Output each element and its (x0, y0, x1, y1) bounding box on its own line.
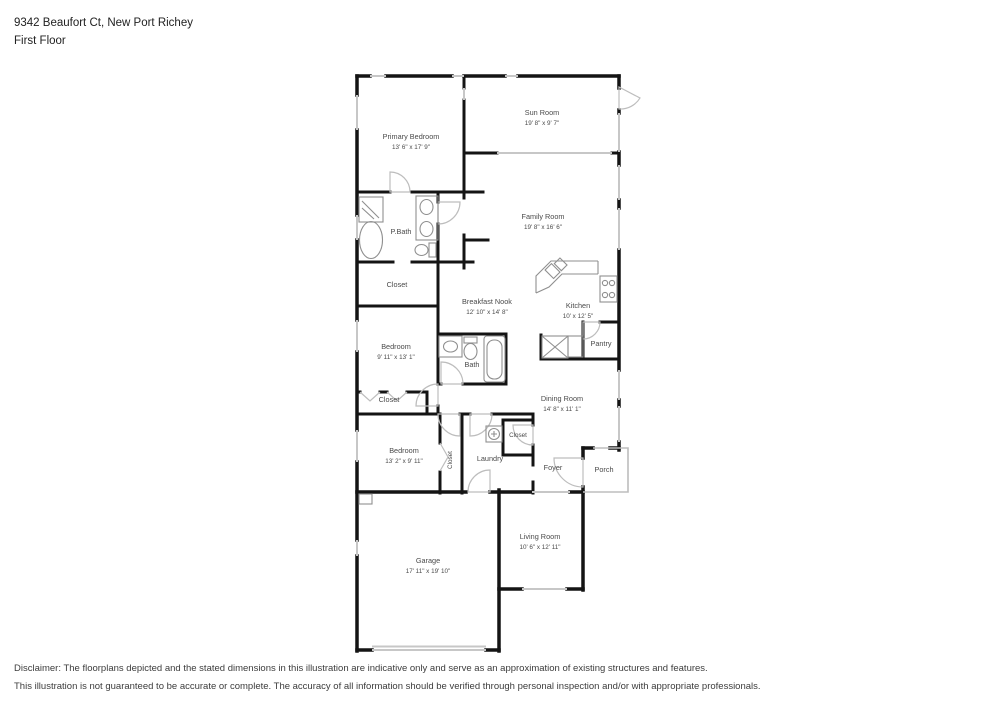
disclaimer-line1: Disclaimer: The floorplans depicted and … (14, 660, 984, 678)
room-label-bath2: Bath (464, 360, 479, 369)
garage-door-swing (468, 470, 490, 492)
room-label-laundry: Laundry (477, 454, 504, 463)
room-label-foyer: Foyer (544, 463, 563, 472)
stove-icon (600, 276, 617, 302)
pbath-door-swing (438, 202, 460, 224)
shower-icon (359, 197, 383, 222)
closet2-bifold-door (360, 392, 380, 401)
room-label-closet-entry: Closet (509, 432, 527, 439)
water-heater-icon (486, 426, 502, 442)
floorplan-svg: Primary Bedroom 13' 6" x 17' 9" Sun Room… (0, 0, 1000, 707)
room-label-sun-room: Sun Room (525, 108, 559, 117)
room-label-bedroom2: Bedroom (381, 342, 411, 351)
room-label-living-room: Living Room (520, 532, 561, 541)
double-sink-vanity-icon (416, 196, 438, 240)
room-label-garage: Garage (416, 556, 440, 565)
room-label-breakfast-nook: Breakfast Nook (462, 297, 512, 306)
kitchen-counter-icon (536, 257, 598, 293)
room-label-closet-bedroom2: Closet (379, 395, 400, 404)
refrigerator-icon (542, 336, 583, 358)
room-label-pbath: P.Bath (391, 227, 412, 236)
room-dims-bedroom3: 13' 2" x 9' 11" (385, 458, 423, 465)
bath-door-swing (441, 362, 463, 384)
room-label-porch: Porch (594, 465, 613, 474)
floorplan-page: 9342 Beaufort Ct, New Port Richey First … (0, 0, 1000, 707)
bath2-sink-icon (439, 336, 462, 357)
disclaimer: Disclaimer: The floorplans depicted and … (14, 660, 984, 696)
pantry-door-swing (583, 322, 600, 339)
room-dims-family-room: 19' 8" x 16' 6" (524, 224, 562, 231)
primary-bedroom-door-swing (390, 172, 410, 192)
room-dims-garage: 17' 11" x 19' 10" (406, 568, 451, 575)
sunroom-door-swing (619, 87, 640, 109)
room-dims-dining-room: 14' 8" x 11' 1" (543, 406, 581, 413)
room-label-primary-bedroom: Primary Bedroom (383, 132, 440, 141)
bathtub-icon (360, 222, 383, 259)
bath2-toilet-icon (464, 337, 477, 360)
room-dims-kitchen: 10' x 12' 5" (563, 313, 594, 320)
room-labels: Primary Bedroom 13' 6" x 17' 9" Sun Room… (377, 108, 613, 575)
room-label-bedroom3: Bedroom (389, 446, 419, 455)
room-label-closet-hall: Closet (447, 451, 454, 469)
windows (357, 76, 619, 650)
toilet-icon (415, 243, 436, 257)
room-dims-breakfast-nook: 12' 10" x 14' 8" (466, 309, 508, 316)
room-label-kitchen: Kitchen (566, 301, 590, 310)
room-dims-bedroom2: 9' 11" x 13' 1" (377, 354, 415, 361)
disclaimer-line2: This illustration is not guaranteed to b… (14, 678, 984, 696)
room-dims-primary-bedroom: 13' 6" x 17' 9" (392, 144, 430, 151)
room-label-pantry: Pantry (590, 339, 611, 348)
room-label-closet-pbath: Closet (387, 280, 408, 289)
bath2-tub-icon (484, 336, 505, 382)
room-dims-living-room: 10' 6" x 12' 11" (519, 544, 560, 551)
room-label-family-room: Family Room (522, 212, 565, 221)
room-label-dining-room: Dining Room (541, 394, 583, 403)
room-dims-sun-room: 19' 8" x 9' 7" (525, 120, 560, 127)
garage-post-icon (359, 494, 372, 504)
exterior-walls (357, 76, 619, 651)
